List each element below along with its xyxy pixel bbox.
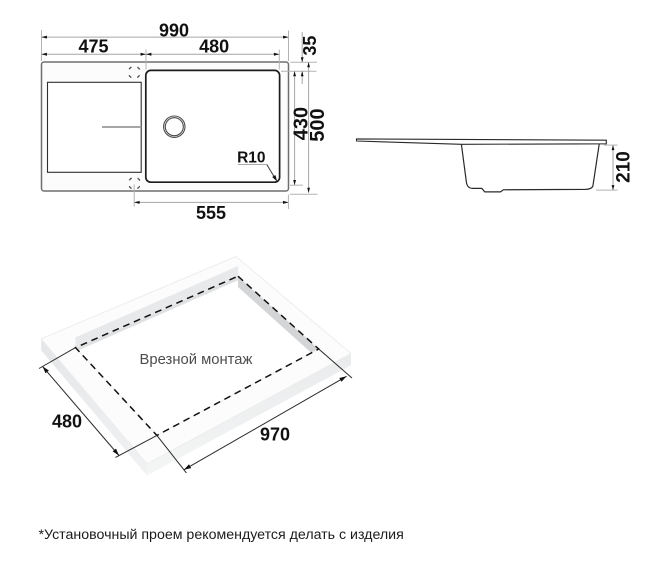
- svg-text:35: 35: [300, 36, 320, 56]
- svg-text:555: 555: [196, 203, 226, 223]
- svg-text:990: 990: [159, 21, 189, 41]
- svg-text:*Установочный проем рекомендуе: *Установочный проем рекомендуется делать…: [39, 527, 404, 543]
- svg-text:970: 970: [260, 425, 290, 445]
- svg-text:Врезной монтаж: Врезной монтаж: [140, 352, 253, 368]
- svg-text:480: 480: [52, 412, 82, 432]
- svg-text:480: 480: [199, 37, 229, 57]
- svg-text:500: 500: [307, 108, 329, 141]
- svg-text:210: 210: [614, 151, 635, 183]
- svg-text:475: 475: [78, 37, 108, 57]
